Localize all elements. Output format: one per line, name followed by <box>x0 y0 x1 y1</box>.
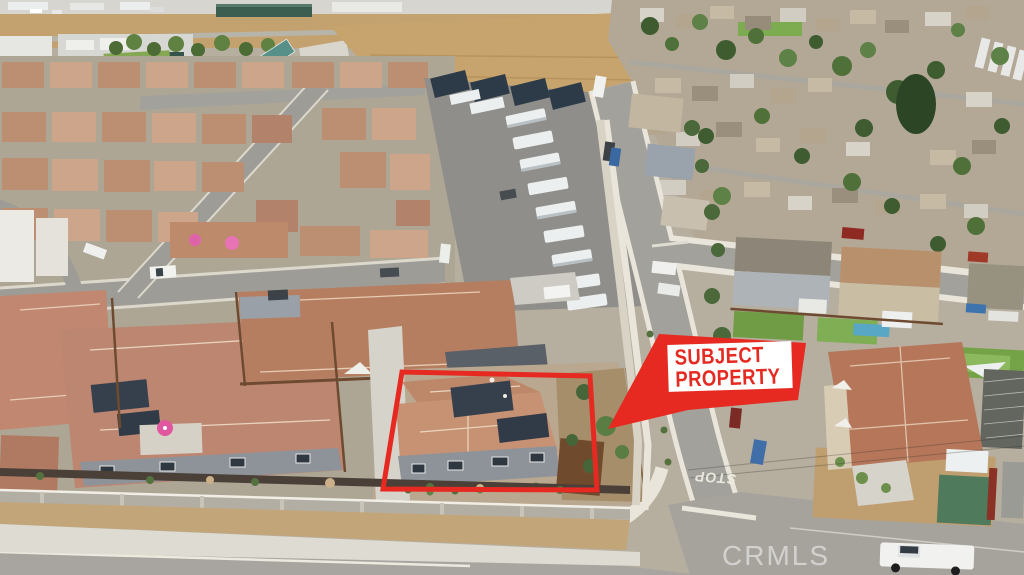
subject-label-line2: PROPERTY <box>675 365 774 390</box>
stop-road-marking: STOP <box>691 468 740 487</box>
aerial-photo <box>0 0 1024 575</box>
listing-photo: SUBJECT PROPERTY STOP CRMLS <box>0 0 1024 575</box>
subject-property-label: SUBJECT PROPERTY <box>667 341 792 392</box>
crmls-watermark: CRMLS <box>722 540 830 572</box>
